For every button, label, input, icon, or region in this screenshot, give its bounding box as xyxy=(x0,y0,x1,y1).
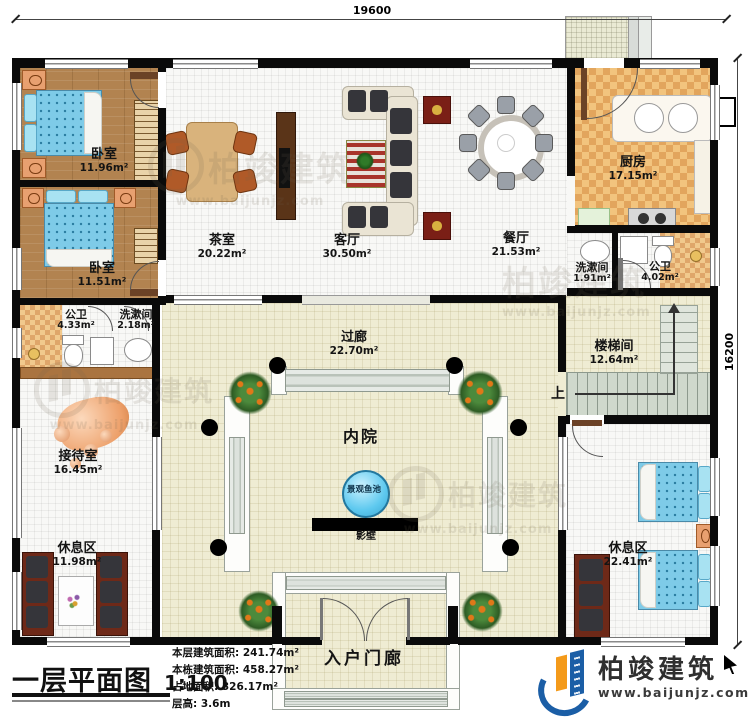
room-label-reception: 接待室16.45m² xyxy=(54,450,103,476)
sofa-cushion xyxy=(579,584,603,606)
stat-floor-area: 本层建筑面积: 241.74m² xyxy=(172,645,299,662)
nightstand xyxy=(22,70,46,90)
sofa-cushion xyxy=(370,90,388,112)
wardrobe xyxy=(134,100,160,182)
stove-burner xyxy=(638,213,649,224)
bathroom-left-shower-floor xyxy=(20,305,62,367)
room-label-rest-area-left: 休息区11.98m² xyxy=(53,542,102,568)
sofa-cushion xyxy=(579,609,603,631)
window xyxy=(470,59,552,69)
tea-chair xyxy=(232,130,258,156)
sofa-cushion xyxy=(390,172,412,198)
label-screen-wall: 影壁 xyxy=(356,531,376,542)
window xyxy=(45,59,128,69)
tea-chair xyxy=(232,168,258,194)
wall-bedroom-divider xyxy=(12,180,158,187)
dining-chair xyxy=(497,96,515,114)
tea-table xyxy=(186,122,238,202)
dining-table-center xyxy=(497,134,515,152)
potted-plant xyxy=(461,590,503,632)
door-leaf xyxy=(130,289,158,296)
sofa-cushion xyxy=(26,606,48,628)
passage-gap xyxy=(567,176,575,226)
pillow xyxy=(24,94,37,122)
window xyxy=(12,83,22,150)
stat-storey-height: 层高: 3.6m xyxy=(172,696,299,713)
stairs-direction-line xyxy=(575,393,675,395)
porch-top-step-strip xyxy=(286,576,446,590)
column xyxy=(502,539,519,556)
dimension-line-top xyxy=(15,19,727,20)
room-label-bedroom-2: 卧室11.51m² xyxy=(78,262,127,288)
window xyxy=(601,637,685,647)
window xyxy=(173,59,258,69)
window xyxy=(640,59,700,69)
kitchen-sink xyxy=(634,103,664,133)
room-label-dining-room: 餐厅21.53m² xyxy=(492,232,541,258)
stove-burner xyxy=(655,213,666,224)
colonnade-beam xyxy=(285,369,450,392)
table-flowers xyxy=(64,592,84,610)
window xyxy=(174,295,262,305)
table-plant xyxy=(356,152,374,170)
colonnade-beam-left xyxy=(229,437,245,534)
colonnade-beam-right xyxy=(487,437,503,534)
glass-door xyxy=(558,437,568,530)
nightstand xyxy=(114,188,136,208)
area-statistics: 本层建筑面积: 241.74m² 本栋建筑面积: 458.27m² 占地面积: … xyxy=(172,645,299,713)
column xyxy=(201,419,218,436)
window xyxy=(12,572,22,630)
pillow xyxy=(78,190,108,203)
room-label-kitchen: 厨房17.15m² xyxy=(609,156,658,182)
reception-ottoman xyxy=(100,430,112,442)
window xyxy=(710,85,720,140)
stat-building-area: 本栋建筑面积: 458.27m² xyxy=(172,662,299,679)
pillow xyxy=(24,124,37,152)
stairs-lower-flight xyxy=(566,372,712,417)
sofa-cushion xyxy=(348,206,366,228)
kitchen-sink xyxy=(668,103,698,133)
toilet xyxy=(64,344,83,367)
sofa-cushion xyxy=(370,206,388,228)
shower-head xyxy=(28,348,40,360)
label-stairs-up: 上 xyxy=(551,387,565,403)
screen-wall xyxy=(312,518,418,531)
column xyxy=(510,419,527,436)
pillow xyxy=(46,190,76,203)
window xyxy=(47,637,130,647)
nightstand xyxy=(22,188,44,208)
dimension-top-label: 19600 xyxy=(353,4,391,17)
porch-post xyxy=(448,606,458,644)
room-label-rest-area-right: 休息区22.41m² xyxy=(604,542,653,568)
column xyxy=(446,357,463,374)
door-gap xyxy=(158,260,166,296)
company-website: www.baijunjz.com xyxy=(598,685,750,700)
room-label-tea-room: 茶室20.22m² xyxy=(198,234,247,260)
washbasin xyxy=(124,338,152,362)
stairs-upper-flight xyxy=(660,305,698,374)
tv-screen xyxy=(279,148,290,188)
sofa-cushion xyxy=(390,108,412,134)
dimension-right-label: 16200 xyxy=(723,333,736,371)
reception-ottoman xyxy=(54,426,70,442)
wall-washroom-bottom xyxy=(567,288,712,296)
stat-footprint-area: 占地面积: 326.17m² xyxy=(172,679,299,696)
sofa-cushion xyxy=(26,581,48,603)
window xyxy=(12,428,22,538)
tea-chair xyxy=(164,130,190,156)
floor-plan: 19600 16200 xyxy=(0,0,750,719)
bed-sheet xyxy=(640,464,656,520)
door-gap xyxy=(158,72,166,108)
wardrobe xyxy=(134,228,158,264)
passage-opening xyxy=(302,295,430,305)
window xyxy=(710,546,720,606)
dining-chair xyxy=(535,134,553,152)
dining-chair xyxy=(459,134,477,152)
title-underline-thick xyxy=(12,693,170,697)
column xyxy=(269,357,286,374)
window xyxy=(710,458,720,516)
wall-kitchen-bottom xyxy=(567,225,712,233)
room-label-courtyard: 内院 xyxy=(343,428,379,446)
company-logo-icon xyxy=(538,648,594,708)
side-cabinet xyxy=(423,212,451,240)
window xyxy=(12,328,22,358)
side-cabinet xyxy=(423,96,451,124)
sofa-cushion xyxy=(348,90,366,112)
column xyxy=(210,539,227,556)
potted-plant xyxy=(457,370,503,416)
room-label-washroom-left: 洗漱间2.18m² xyxy=(117,309,155,332)
balcony-door-gap xyxy=(584,58,624,68)
wall-bedroom2-bottom xyxy=(12,298,160,305)
company-logo: 柏竣建筑 www.baijunjz.com xyxy=(538,648,750,708)
room-label-bathroom-right: 公卫4.02m² xyxy=(641,261,679,284)
stairs-direction-line xyxy=(673,312,675,394)
room-label-stairwell: 楼梯间12.64m² xyxy=(590,340,639,366)
sofa-cushion xyxy=(100,581,122,603)
dimension-tick xyxy=(722,14,731,23)
dimension-line-right xyxy=(737,58,738,645)
washbasin xyxy=(580,240,610,263)
washbasin-cabinet xyxy=(90,337,114,365)
kitchen-balcony xyxy=(565,16,630,60)
label-fish-pond: 景观鱼池 xyxy=(347,486,381,496)
door-leaf xyxy=(130,72,158,79)
title-underline-thin xyxy=(12,700,170,702)
porch-bottom-step-strip xyxy=(284,699,448,707)
balcony-step xyxy=(638,16,652,60)
room-label-bedroom-1: 卧室11.96m² xyxy=(80,148,129,174)
sofa-cushion xyxy=(390,140,412,166)
porch-bottom-step-strip xyxy=(284,691,448,699)
room-label-bathroom-left: 公卫4.33m² xyxy=(57,309,95,332)
sofa-cushion xyxy=(100,556,122,578)
porch-threshold xyxy=(282,637,322,645)
window xyxy=(710,248,720,286)
sofa-cushion xyxy=(26,556,48,578)
room-label-corridor: 过廊22.70m² xyxy=(330,331,379,357)
nightstand xyxy=(22,158,46,178)
vanity-counter xyxy=(20,367,154,379)
glass-door xyxy=(152,437,162,530)
room-label-entrance-porch: 入户门廊 xyxy=(324,650,404,669)
room-label-living-room: 客厅30.50m² xyxy=(323,234,372,260)
window xyxy=(12,248,22,290)
bed-sheet xyxy=(84,92,102,154)
room-label-washroom-right: 洗漱间1.91m² xyxy=(573,262,611,285)
dining-chair xyxy=(497,172,515,190)
shower-head xyxy=(690,250,702,262)
potted-plant xyxy=(228,371,272,415)
sofa-cushion xyxy=(100,606,122,628)
sofa-cushion xyxy=(579,559,603,581)
porch-post xyxy=(272,606,282,644)
tea-chair xyxy=(164,168,190,194)
porch-threshold xyxy=(406,637,450,645)
